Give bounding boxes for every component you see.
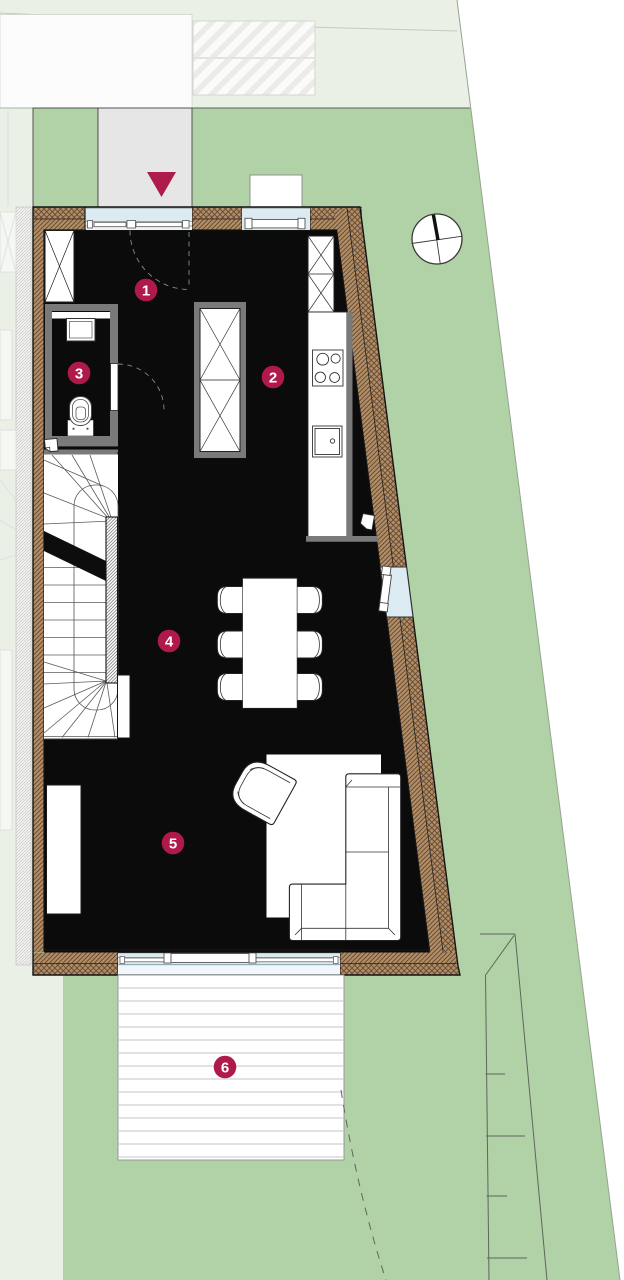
svg-text:5: 5 [169, 835, 177, 852]
svg-text:6: 6 [221, 1059, 229, 1076]
svg-text:2: 2 [269, 369, 277, 386]
svg-text:4: 4 [165, 633, 174, 650]
svg-text:3: 3 [75, 365, 83, 382]
svg-text:1: 1 [142, 282, 150, 299]
